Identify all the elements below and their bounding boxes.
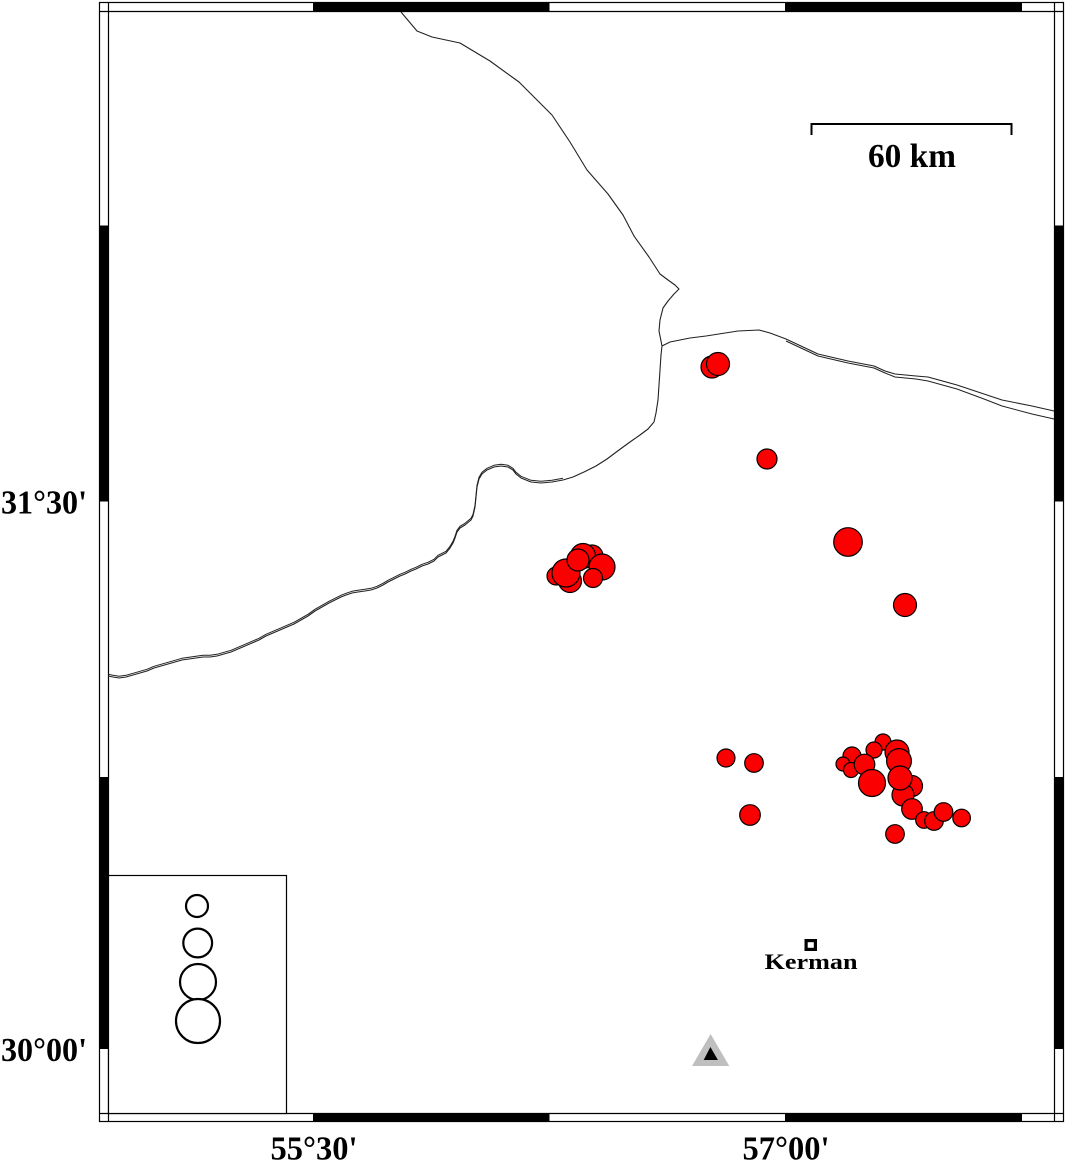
svg-text:57°00': 57°00' [743, 1131, 830, 1161]
svg-text:55°30': 55°30' [271, 1131, 358, 1161]
svg-text:Kerman: Kerman [765, 949, 858, 974]
svg-text:31°30': 31°30' [1, 485, 87, 522]
svg-text:60 km: 60 km [868, 138, 956, 175]
svg-text:30°00': 30°00' [1, 1032, 87, 1069]
